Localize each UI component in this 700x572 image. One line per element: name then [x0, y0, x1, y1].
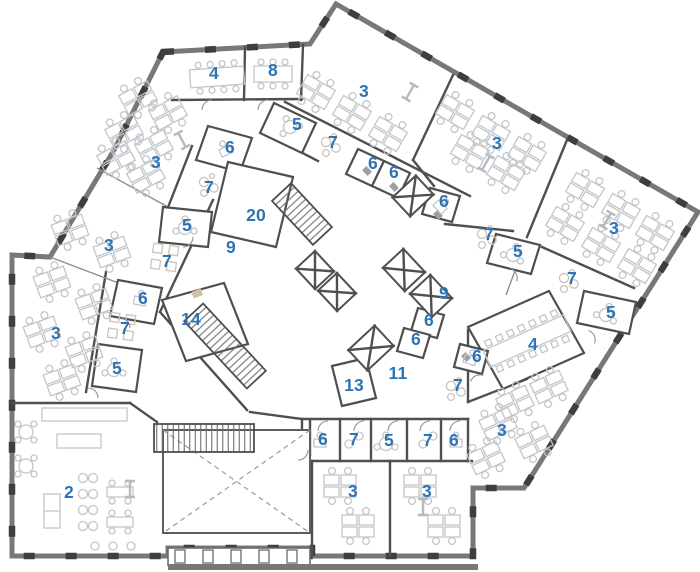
room-label-19-room-7: 7: [162, 251, 172, 271]
room-label-10-room-7: 7: [204, 177, 214, 197]
room-label-17-room-9: 9: [226, 237, 236, 257]
sidewalk-strip: [168, 564, 478, 570]
floor-plan-page: 4835736366762053739577965146736465111373…: [0, 0, 700, 572]
room-label-40-room-6: 6: [449, 430, 459, 450]
room-label-15-room-7: 7: [484, 224, 494, 244]
room-label-29-room-4: 4: [528, 334, 538, 354]
room-label-39-room-7: 7: [423, 430, 433, 450]
room-label-31-room-5: 5: [112, 358, 122, 378]
room-label-33-room-13: 13: [344, 375, 364, 395]
room-label-12-room-20: 20: [246, 205, 266, 225]
floor-plan-drawing: 4835736366762053739577965146736465111373…: [0, 0, 700, 572]
room-label-38-room-5: 5: [384, 430, 394, 450]
room-label-13-room-5: 5: [182, 215, 192, 235]
room-label-14-room-3: 3: [609, 218, 619, 238]
atrium: [154, 424, 310, 533]
room-label-6-room-6: 6: [225, 137, 235, 157]
room-label-20-room-7: 7: [567, 268, 577, 288]
room-label-11-room-6: 6: [439, 191, 449, 211]
room-label-3-room-5: 5: [292, 114, 302, 134]
room-label-7-room-3: 3: [151, 152, 161, 172]
room-label-35-room-3: 3: [497, 420, 507, 440]
room-label-8-room-6: 6: [368, 153, 378, 173]
room-label-18-room-5: 5: [513, 241, 523, 261]
room-label-4-room-7: 7: [328, 132, 338, 152]
room-label-32-room-11: 11: [389, 363, 408, 383]
room-label-22-room-6: 6: [138, 288, 148, 308]
exterior-wall: [12, 4, 698, 556]
room-label-9-room-6: 6: [389, 162, 399, 182]
room-label-16-room-3: 3: [104, 235, 114, 255]
room-label-27-room-3: 3: [51, 323, 61, 343]
room-label-34-room-7: 7: [453, 375, 463, 395]
atrium-stair: [154, 424, 254, 452]
room-label-41-room-2: 2: [64, 482, 74, 502]
room-label-25-room-6: 6: [424, 310, 434, 330]
room-label-26-room-7: 7: [120, 318, 130, 338]
room-label-24-room-14: 14: [181, 309, 201, 329]
room-label-36-room-6: 6: [318, 429, 328, 449]
room-label-5-room-3: 3: [492, 133, 502, 153]
room-label-2-room-3: 3: [359, 81, 369, 101]
room-label-1-room-8: 8: [268, 60, 278, 80]
room-label-30-room-6: 6: [472, 346, 482, 366]
room-label-21-room-9: 9: [439, 283, 449, 303]
room-label-43-room-3: 3: [422, 481, 432, 501]
room-label-37-room-7: 7: [349, 429, 359, 449]
room-label-23-room-5: 5: [606, 302, 616, 322]
room-label-28-room-6: 6: [411, 329, 421, 349]
room-label-0-room-4: 4: [209, 63, 219, 83]
room-label-42-room-3: 3: [348, 481, 358, 501]
